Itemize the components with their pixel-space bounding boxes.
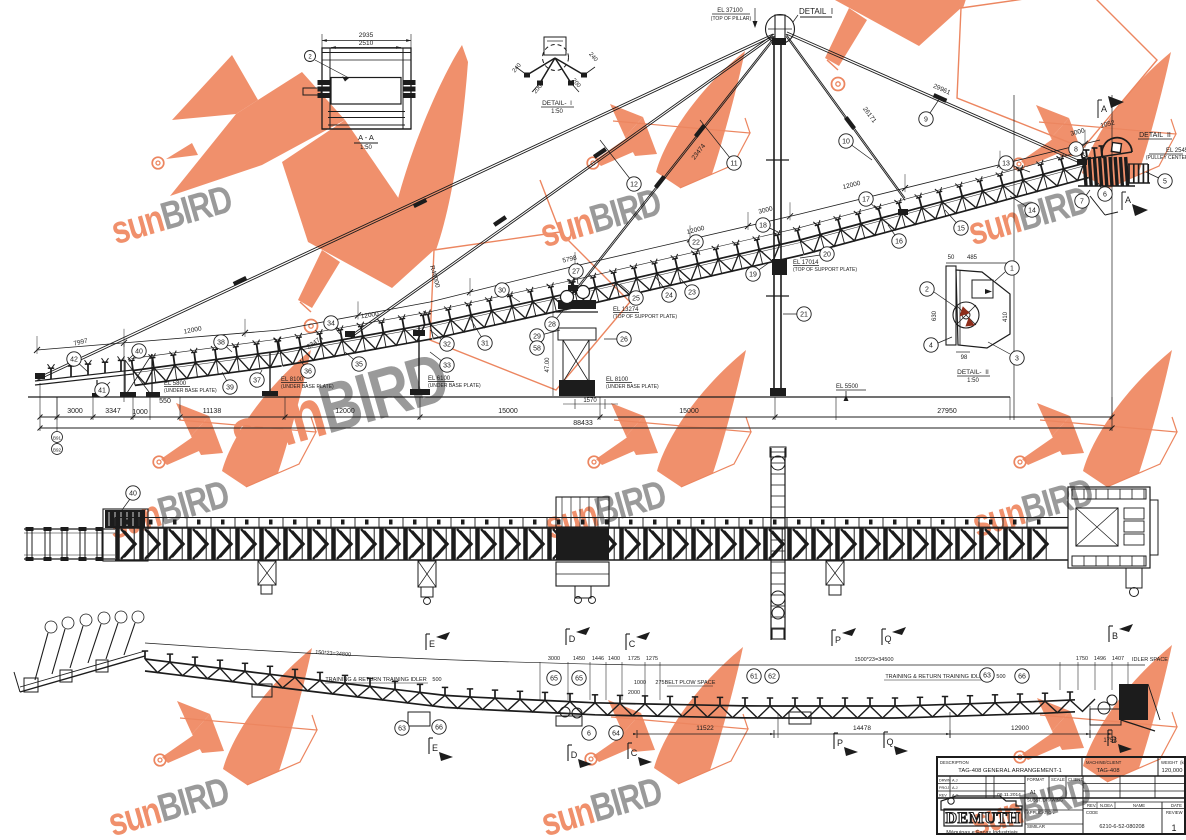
svg-text:BELT PLOW SPACE: BELT PLOW SPACE (665, 680, 716, 686)
svg-text:NAME: NAME (1133, 803, 1145, 808)
svg-text:27: 27 (572, 268, 580, 275)
svg-text:58: 58 (533, 345, 541, 352)
svg-text:Q: Q (884, 634, 891, 644)
svg-text:1:50: 1:50 (551, 109, 563, 115)
svg-text:C: C (631, 748, 638, 758)
svg-text:11138: 11138 (203, 408, 222, 415)
svg-text:1:50: 1:50 (360, 145, 372, 151)
svg-text:500: 500 (432, 677, 441, 683)
svg-text:8: 8 (1074, 146, 1078, 153)
svg-text:SCALE: SCALE (1051, 777, 1065, 782)
svg-text:120,000: 120,000 (1162, 768, 1183, 774)
svg-text:EL 17014: EL 17014 (793, 260, 819, 266)
svg-text:1450: 1450 (573, 656, 585, 662)
svg-text:550: 550 (159, 398, 171, 405)
svg-text:9: 9 (924, 116, 928, 123)
svg-text:1496: 1496 (1094, 656, 1106, 662)
svg-text:WEIGHT (kg): WEIGHT (kg) (1161, 760, 1186, 765)
svg-text:1000: 1000 (634, 680, 646, 686)
svg-text:(UNDER BASE PLATE): (UNDER BASE PLATE) (164, 388, 217, 394)
svg-text:IDLER SPACE: IDLER SPACE (1132, 657, 1168, 663)
svg-text:39: 39 (226, 384, 234, 391)
svg-text:1570: 1570 (583, 398, 597, 404)
svg-text:A.J: A.J (952, 779, 958, 783)
svg-text:12000: 12000 (335, 408, 355, 415)
svg-text:TRAINING & RETURN TRAINING IDL: TRAINING & RETURN TRAINING IDLER (885, 674, 986, 680)
svg-text:42: 42 (70, 356, 78, 363)
svg-text:32: 32 (443, 341, 451, 348)
svg-text:CODE: CODE (1086, 810, 1098, 815)
svg-text:B91: B91 (53, 436, 62, 441)
svg-text:2510: 2510 (359, 40, 374, 47)
svg-text:6210-6-52-080208: 6210-6-52-080208 (1099, 824, 1144, 830)
svg-text:40: 40 (135, 348, 143, 355)
svg-text:47.00: 47.00 (545, 357, 551, 373)
svg-text:DESCRIPTION: DESCRIPTION (940, 760, 969, 765)
svg-text:26: 26 (620, 336, 628, 343)
svg-text:15000: 15000 (498, 408, 518, 415)
svg-text:65: 65 (575, 675, 583, 682)
svg-text:DETAIL I: DETAIL I (799, 7, 833, 16)
svg-text:TRAINING & RETURN TRAINING IDL: TRAINING & RETURN TRAINING IDLER (325, 677, 426, 683)
svg-text:REV: REV (939, 794, 947, 798)
svg-text:D: D (569, 634, 576, 644)
svg-text:27950: 27950 (937, 408, 957, 415)
svg-text:63: 63 (983, 672, 991, 679)
svg-text:630: 630 (932, 310, 938, 321)
svg-text:29: 29 (533, 333, 541, 340)
svg-text:21: 21 (800, 311, 808, 318)
svg-text:34: 34 (327, 320, 335, 327)
svg-text:6: 6 (587, 730, 591, 737)
svg-text:DRWN: DRWN (939, 779, 951, 783)
svg-text:EL 5800: EL 5800 (164, 381, 187, 387)
svg-text:3: 3 (1015, 355, 1019, 362)
svg-text:88433: 88433 (573, 420, 593, 427)
svg-text:PROJ: PROJ (939, 786, 949, 790)
svg-text:15: 15 (957, 225, 965, 232)
svg-text:(PULLEY CENTER): (PULLEY CENTER) (1146, 155, 1186, 161)
svg-text:66: 66 (1018, 673, 1026, 680)
svg-text:98: 98 (961, 355, 968, 361)
svg-text:EL 8100: EL 8100 (281, 377, 304, 383)
svg-text:REVIEW: REVIEW (1166, 810, 1183, 815)
svg-text:275: 275 (655, 680, 664, 686)
svg-text:A - A: A - A (358, 133, 374, 142)
svg-text:10: 10 (842, 138, 850, 145)
svg-text:5: 5 (1163, 178, 1167, 185)
svg-text:410: 410 (1003, 311, 1009, 322)
svg-text:CLIENT: CLIENT (1068, 777, 1083, 782)
svg-text:E: E (429, 639, 435, 649)
svg-text:2935: 2935 (359, 32, 374, 39)
svg-text:1446: 1446 (592, 656, 604, 662)
svg-text:37: 37 (253, 377, 261, 384)
svg-text:SUBST. DRAWING: SUBST. DRAWING (1027, 798, 1063, 803)
svg-text:MACHINE/CLIENT: MACHINE/CLIENT (1086, 760, 1122, 765)
svg-text:12: 12 (630, 181, 638, 188)
svg-text:1750: 1750 (1076, 656, 1088, 662)
svg-text:17: 17 (862, 196, 870, 203)
svg-text:1725: 1725 (628, 656, 640, 662)
svg-text:Q: Q (886, 737, 893, 747)
svg-text:3000: 3000 (548, 656, 560, 662)
svg-text:16: 16 (895, 238, 903, 245)
svg-text:19: 19 (749, 271, 757, 278)
svg-text:(UNDER BASE PLATE): (UNDER BASE PLATE) (281, 384, 334, 390)
svg-text:DETAIL- I: DETAIL- I (542, 100, 572, 107)
svg-text:REV.: REV. (1087, 803, 1096, 808)
svg-text:22: 22 (692, 239, 700, 246)
svg-text:(TOP OF SUPPORT PLATE): (TOP OF SUPPORT PLATE) (793, 267, 857, 273)
svg-text:62: 62 (768, 673, 776, 680)
svg-text:35: 35 (355, 361, 363, 368)
svg-text:DEMUTH: DEMUTH (946, 810, 1021, 827)
svg-text:DATE: DATE (1171, 803, 1182, 808)
svg-text:31: 31 (481, 340, 489, 347)
svg-text:2000: 2000 (628, 690, 640, 696)
svg-text:C: C (629, 639, 636, 649)
svg-text:EL 6100: EL 6100 (428, 376, 451, 382)
svg-text:3347: 3347 (105, 408, 121, 415)
svg-text:25: 25 (632, 295, 640, 302)
svg-text:61: 61 (750, 673, 758, 680)
svg-text:66: 66 (435, 724, 443, 731)
svg-text:EL 13274: EL 13274 (613, 307, 639, 313)
svg-text:485: 485 (967, 255, 978, 261)
svg-text:P: P (835, 635, 841, 645)
svg-text:N.DEA: N.DEA (1100, 803, 1113, 808)
svg-text:(TOP OF PILLAR): (TOP OF PILLAR) (711, 16, 752, 22)
svg-text:P: P (837, 738, 843, 748)
svg-text:30: 30 (498, 287, 506, 294)
svg-text:TAG-408 GENERAL ARRANGEMENT-1: TAG-408 GENERAL ARRANGEMENT-1 (958, 768, 1061, 774)
svg-text:E: E (432, 743, 438, 753)
svg-text:11522: 11522 (696, 725, 714, 732)
svg-text:1400: 1400 (608, 656, 620, 662)
svg-text:D: D (571, 750, 578, 760)
svg-text:13: 13 (1002, 160, 1010, 167)
svg-text:18: 18 (759, 222, 767, 229)
svg-text:500: 500 (996, 674, 1005, 680)
svg-text:FORMAT: FORMAT (1027, 777, 1045, 782)
svg-text:14: 14 (1028, 207, 1036, 214)
svg-text:A1: A1 (1030, 790, 1036, 796)
svg-text:7: 7 (1080, 198, 1084, 205)
svg-text:41: 41 (98, 387, 106, 394)
svg-text:B: B (1111, 735, 1117, 745)
svg-text:1000: 1000 (132, 409, 148, 416)
svg-text:64: 64 (612, 730, 620, 737)
svg-text:1:50: 1:50 (967, 378, 979, 384)
svg-text:23: 23 (688, 289, 696, 296)
svg-text:EL 25450: EL 25450 (1166, 148, 1186, 154)
svg-text:B92: B92 (53, 448, 62, 453)
svg-text:28: 28 (548, 321, 556, 328)
svg-text:DETAIL- II: DETAIL- II (957, 369, 989, 376)
svg-text:SIMILAR: SIMILAR (1027, 824, 1046, 829)
svg-text:(UNDER BASE PLATE): (UNDER BASE PLATE) (606, 384, 659, 390)
svg-text:20: 20 (823, 251, 831, 258)
svg-text:6: 6 (1103, 191, 1107, 198)
svg-text:1407: 1407 (1112, 656, 1124, 662)
svg-text:33: 33 (443, 362, 451, 369)
svg-text:38: 38 (217, 339, 225, 346)
svg-text:1: 1 (1010, 265, 1014, 272)
svg-text:A.J: A.J (952, 786, 958, 790)
svg-text:DETAIL II: DETAIL II (1139, 132, 1171, 139)
svg-text:1500*23=34500: 1500*23=34500 (855, 657, 894, 663)
svg-text:36: 36 (304, 368, 312, 375)
svg-text:14478: 14478 (853, 725, 871, 732)
svg-text:11: 11 (730, 160, 737, 167)
svg-text:Máquinas e Facas Industriais: Máquinas e Facas Industriais (946, 830, 1018, 835)
svg-text:A: A (1125, 195, 1131, 205)
svg-text:63: 63 (398, 725, 406, 732)
svg-text:EL 8100: EL 8100 (606, 377, 629, 383)
svg-text:12900: 12900 (1011, 725, 1029, 732)
svg-text:(UNDER BASE PLATE): (UNDER BASE PLATE) (428, 383, 481, 389)
svg-text:40: 40 (129, 490, 137, 497)
svg-text:TAG-408: TAG-408 (1096, 768, 1119, 774)
svg-text:1275: 1275 (646, 656, 658, 662)
svg-text:A: A (1101, 104, 1107, 114)
svg-text:50: 50 (948, 255, 955, 261)
svg-text:65: 65 (550, 675, 558, 682)
svg-text:15000: 15000 (679, 408, 699, 415)
svg-text:(TOP OF SUPPORT PLATE): (TOP OF SUPPORT PLATE) (613, 314, 677, 320)
svg-text:B: B (1112, 631, 1118, 641)
svg-text:APPLICATION: APPLICATION (1027, 810, 1054, 815)
svg-text:EL 5500: EL 5500 (836, 384, 859, 390)
svg-text:4: 4 (929, 342, 933, 349)
svg-text:24: 24 (665, 292, 673, 299)
svg-text:1: 1 (1171, 823, 1176, 833)
svg-text:3000: 3000 (67, 408, 83, 415)
svg-text:2: 2 (925, 286, 929, 293)
svg-text:EL 37100: EL 37100 (717, 8, 743, 14)
